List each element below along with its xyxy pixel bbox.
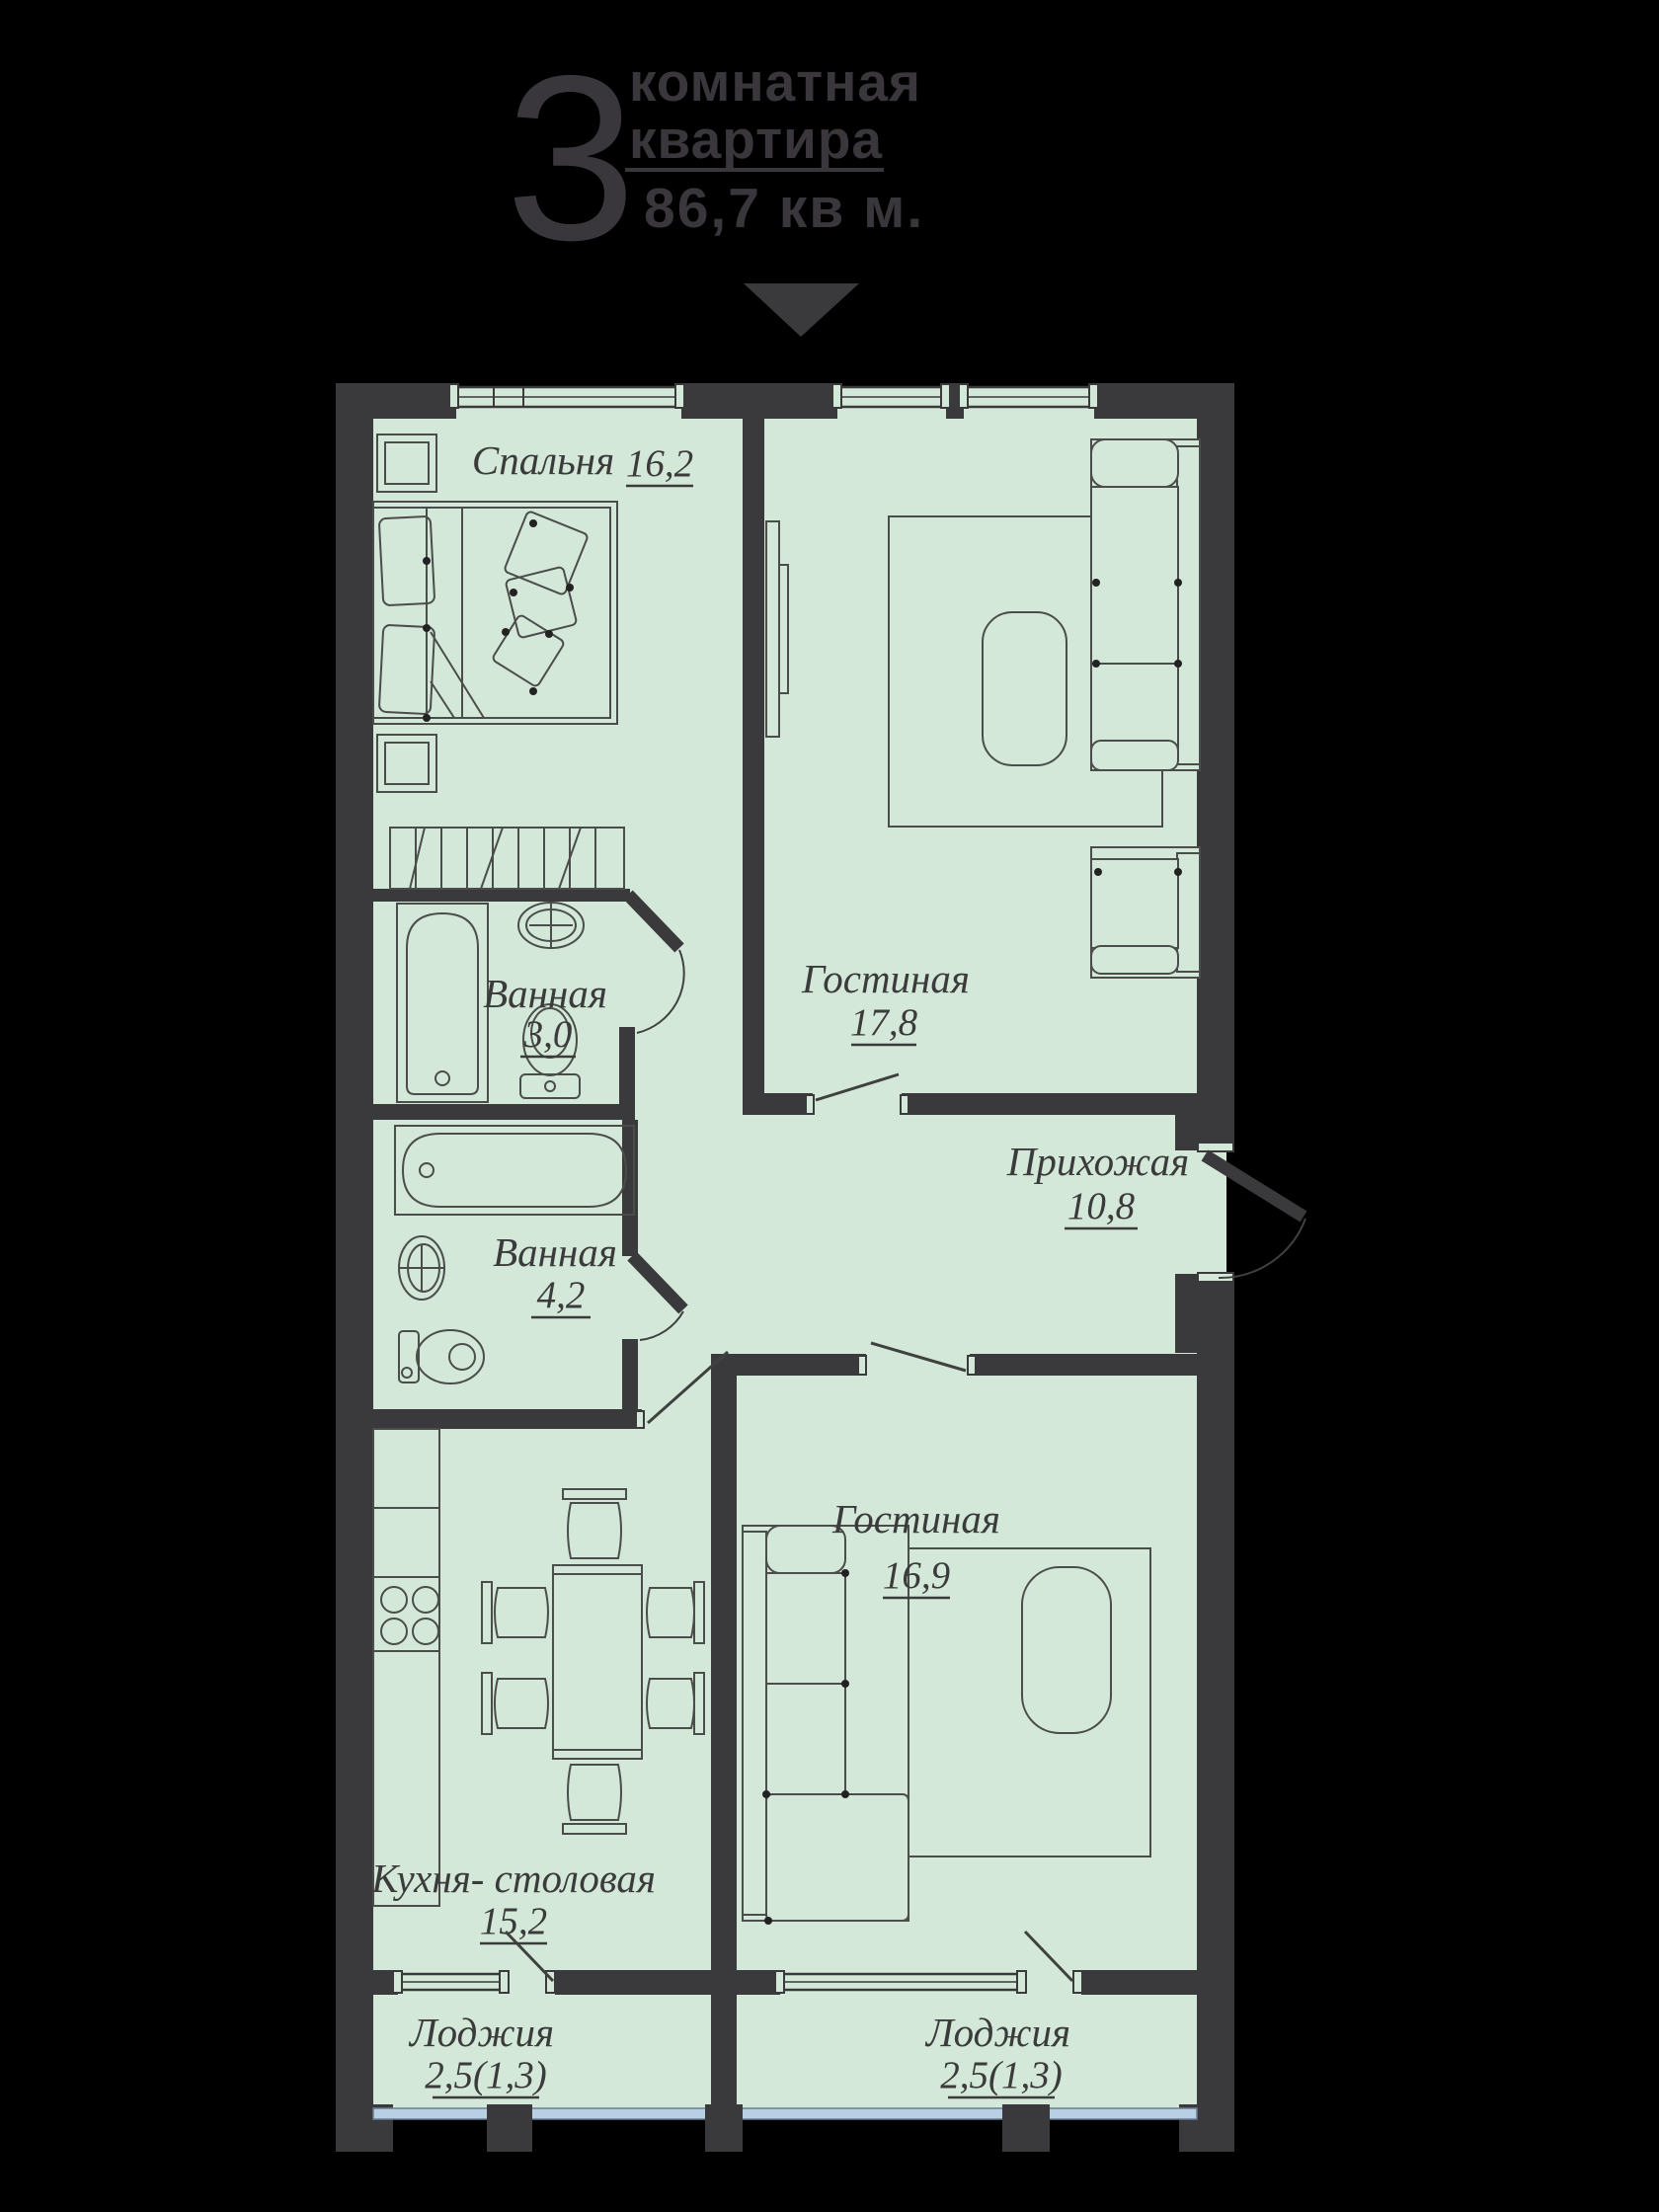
chair xyxy=(568,1765,621,1820)
loggia-left-area-label: 2,5(1,3) xyxy=(425,2054,546,2096)
bath-big-name-label: Ванная xyxy=(493,1229,617,1275)
bath-big-area-label: 4,2 xyxy=(537,1274,586,1316)
living2-name-label: Гостиная xyxy=(831,1496,1000,1541)
rooms-count: 3 xyxy=(506,28,636,289)
header: 3 комнатная квартира 86,7 кв м. xyxy=(506,28,924,337)
bath-small-name-label: Ванная xyxy=(483,971,607,1016)
entrance-door-arc xyxy=(1219,1219,1305,1278)
loggia-left-name-label: Лоджия xyxy=(408,2010,554,2055)
floor-plan-page: 3 комнатная квартира 86,7 кв м. xyxy=(0,0,1659,2212)
chair xyxy=(647,1679,694,1728)
living2-area-label: 16,9 xyxy=(883,1554,950,1597)
down-arrow-icon xyxy=(744,283,859,337)
kitchen-name-label: Кухня- столовая xyxy=(370,1856,656,1901)
loggia-right-name-label: Лоджия xyxy=(924,2010,1070,2055)
header-title-line2: квартира xyxy=(629,109,883,170)
bedroom-area-label: 16,2 xyxy=(626,442,693,485)
floor-plan-canvas: 3 комнатная квартира 86,7 кв м. xyxy=(0,0,1659,2212)
hallway-name-label: Прихожая xyxy=(1006,1139,1189,1184)
kitchen-area-label: 15,2 xyxy=(480,1900,547,1942)
chair xyxy=(495,1679,548,1728)
living1-area-label: 17,8 xyxy=(850,1001,918,1044)
bedroom-name-label: Спальня xyxy=(472,437,614,483)
hallway-area-label: 10,8 xyxy=(1067,1185,1136,1227)
loggia-right-area-label: 2,5(1,3) xyxy=(940,2054,1062,2096)
chair xyxy=(568,1503,621,1558)
chair xyxy=(647,1588,694,1637)
chair xyxy=(495,1588,548,1637)
sofa xyxy=(1091,439,1200,770)
glazing-pier xyxy=(705,2104,743,2152)
living1-name-label: Гостиная xyxy=(801,956,970,1001)
bath-small-area-label: 3,0 xyxy=(523,1013,573,1056)
header-underline xyxy=(625,168,884,172)
header-title-line1: комнатная xyxy=(629,51,921,113)
glazing-pier xyxy=(1002,2104,1050,2152)
armchair xyxy=(1091,847,1200,978)
glazing-pier xyxy=(487,2104,532,2152)
total-area: 86,7 кв м. xyxy=(644,177,924,240)
